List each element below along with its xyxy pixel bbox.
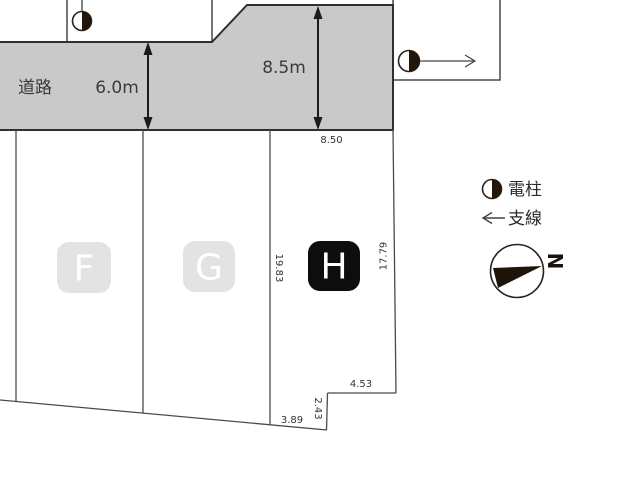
legend-pole-row: 電柱 bbox=[483, 180, 543, 201]
road-width-label: 6.0m bbox=[95, 78, 139, 98]
boundary-south bbox=[0, 400, 327, 430]
north-compass: N bbox=[491, 245, 568, 298]
plot-badge-f: F bbox=[57, 242, 111, 293]
site-plan-canvas: 道路 6.0m 8.5m 8.50 19.83 17.79 2.43 3.89 … bbox=[0, 0, 640, 480]
plot-label-f: F bbox=[74, 249, 95, 290]
legend-pole-label: 電柱 bbox=[508, 180, 542, 200]
legend-wire-row: 支線 bbox=[483, 209, 542, 229]
plot-label-h: H bbox=[320, 247, 347, 288]
dim-road-frontage: 8.50 bbox=[320, 135, 342, 146]
boundary-east-of-h bbox=[393, 130, 396, 393]
legend-wire-label: 支線 bbox=[508, 209, 542, 229]
boundary-south-step-vertical bbox=[327, 393, 328, 430]
plot-badge-g: G bbox=[183, 241, 235, 292]
dim-h-step-depth: 2.43 bbox=[312, 397, 323, 419]
dim-h-west: 19.83 bbox=[273, 254, 284, 283]
plot-badge-h: H bbox=[308, 241, 360, 291]
site-plan: 道路 6.0m 8.5m 8.50 19.83 17.79 2.43 3.89 … bbox=[0, 0, 640, 480]
dim-h-south-east: 4.53 bbox=[350, 379, 372, 390]
plot-label-g: G bbox=[195, 248, 223, 289]
dim-h-south-west: 3.89 bbox=[281, 415, 303, 426]
dim-h-east: 17.79 bbox=[379, 242, 390, 271]
road-name-label: 道路 bbox=[18, 78, 52, 98]
legend: 電柱 支線 N bbox=[483, 180, 568, 298]
pole-half-fill bbox=[492, 180, 502, 199]
north-label: N bbox=[543, 253, 567, 270]
road-depth-label: 8.5m bbox=[262, 58, 306, 78]
